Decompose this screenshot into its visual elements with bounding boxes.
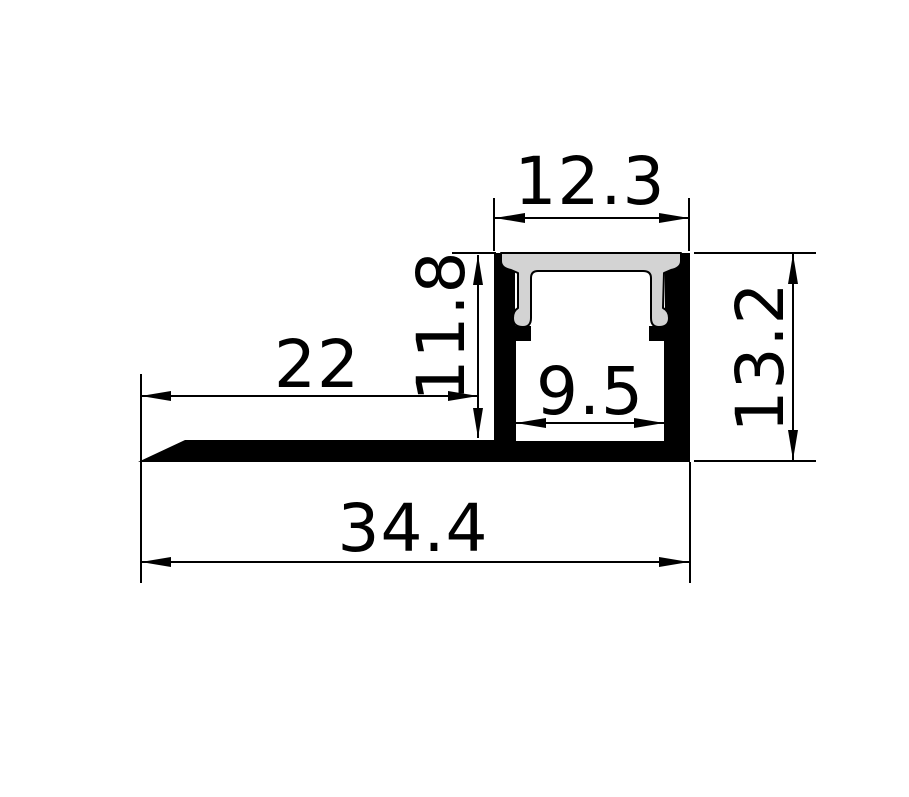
- drawing-page: 12.3 11.8 22 9.5 13.2 34.4: [0, 0, 909, 797]
- technical-drawing-canvas: 12.3 11.8 22 9.5 13.2 34.4: [0, 0, 909, 797]
- dim-label-inner-width: 9.5: [536, 353, 644, 430]
- dim-label-top-width: 12.3: [515, 143, 666, 220]
- dim-label-flange-length: 22: [274, 326, 360, 403]
- dim-label-recess-depth: 11.8: [403, 251, 480, 402]
- dim-label-overall-height: 13.2: [722, 282, 799, 433]
- dim-label-overall-width: 34.4: [338, 490, 489, 567]
